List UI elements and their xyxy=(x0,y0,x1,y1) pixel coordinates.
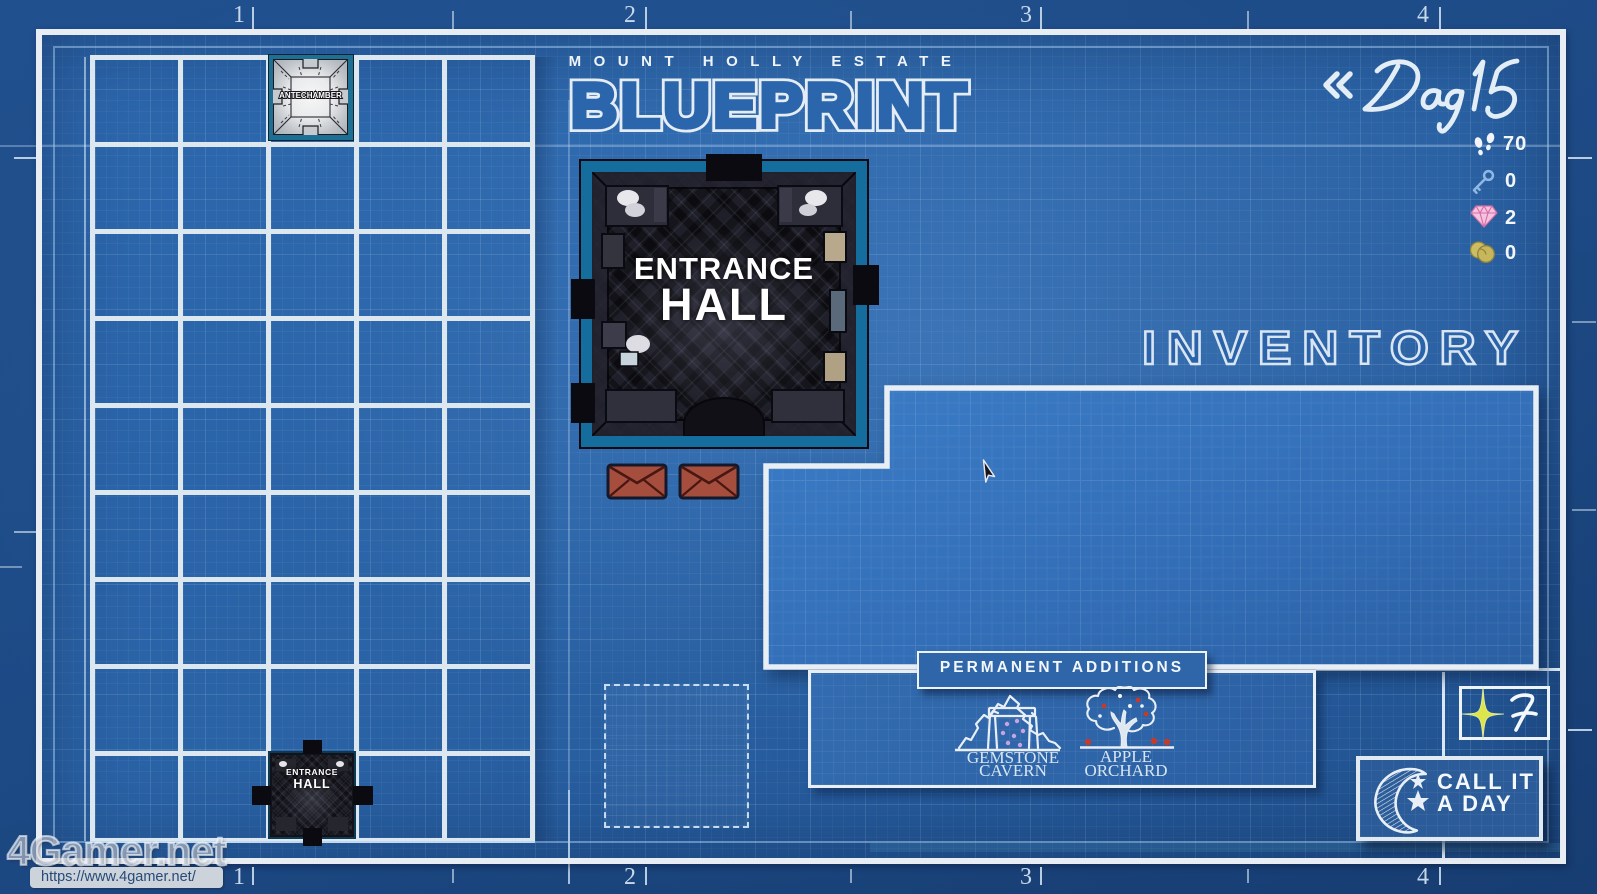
svg-text:ANTECHAMBER: ANTECHAMBER xyxy=(279,91,342,100)
